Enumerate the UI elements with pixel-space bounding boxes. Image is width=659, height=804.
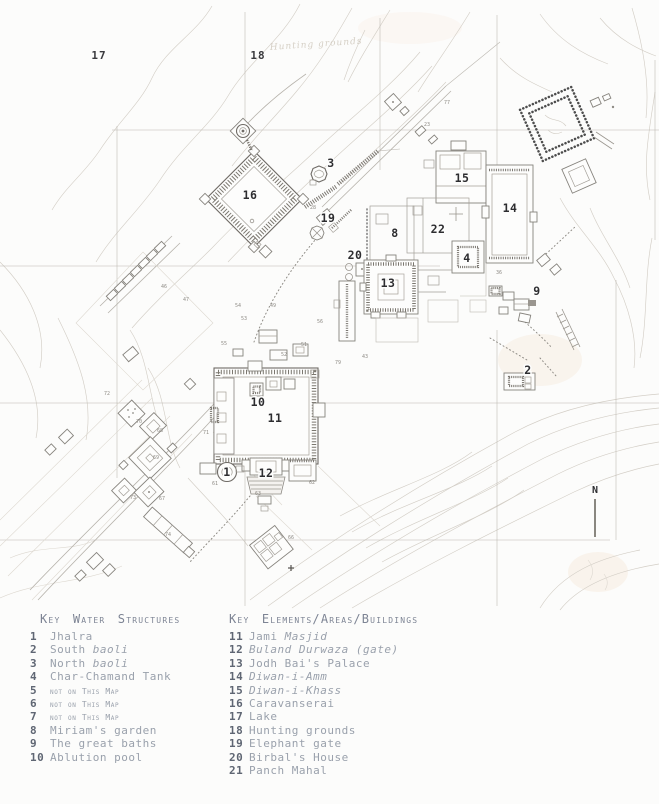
map-label-28: 28 xyxy=(310,205,316,211)
map-label-74: 74 xyxy=(165,532,171,538)
legend-item-number: 14 xyxy=(229,670,249,683)
map-label-55: 55 xyxy=(221,341,227,347)
map-label-12: 12 xyxy=(259,466,274,480)
handwritten-note: Hunting grounds xyxy=(269,37,363,54)
legend-item-12: 12Buland Durwaza (gate) xyxy=(229,643,418,656)
tomb-plan xyxy=(266,377,295,390)
map-label-49: 49 xyxy=(270,303,276,309)
legend-item-text: not on This Map xyxy=(50,684,119,697)
legend-item-text: Lake xyxy=(249,710,278,723)
legend-item-text: Diwan-i-Khass xyxy=(249,684,342,697)
map-label-9: 9 xyxy=(533,284,540,298)
legend-item-6: 6not on This Map xyxy=(30,697,180,710)
map-label-8: 8 xyxy=(391,226,398,240)
legend-item-15: 15Diwan-i-Khass xyxy=(229,684,418,697)
legend-item-number: 6 xyxy=(30,697,50,710)
legend-item-text: Buland Durwaza (gate) xyxy=(249,643,399,656)
map-label-66: 66 xyxy=(288,535,294,541)
map-label-10: 10 xyxy=(251,395,266,409)
legend-water-title: Key Water Structures xyxy=(40,612,180,630)
legend-item-number: 17 xyxy=(229,710,249,723)
legend-item-3: 3North baoli xyxy=(30,657,180,670)
map-label-72: 72 xyxy=(104,391,110,397)
legend-item-text: Caravanserai xyxy=(249,697,334,710)
legend-item-number: 10 xyxy=(30,751,50,764)
tower-plan xyxy=(230,118,255,151)
legend-item-text: Char-Chamand Tank xyxy=(50,670,171,683)
legend-item-text: North baoli xyxy=(50,657,128,670)
legend-item-8: 8Miriam's garden xyxy=(30,724,180,737)
legend-item-number: 16 xyxy=(229,697,249,710)
legend-water-items: 1Jhalra2South baoli3North baoli4Char-Cha… xyxy=(30,630,180,764)
great-baths-plan xyxy=(489,253,561,323)
map-label-3: 3 xyxy=(327,156,334,170)
legend-item-text: Miriam's garden xyxy=(50,724,157,737)
legend-item-14: 14Diwan-i-Amm xyxy=(229,670,418,683)
legend-item-number: 8 xyxy=(30,724,50,737)
map-label-46: 46 xyxy=(161,284,167,290)
map-label-71: 71 xyxy=(203,430,209,436)
legend-item-text: South baoli xyxy=(50,643,128,656)
legend-item-16: 16Caravanserai xyxy=(229,697,418,710)
legend-item-number: 2 xyxy=(30,643,50,656)
legend-item-number: 1 xyxy=(30,630,50,643)
legend-item-number: 21 xyxy=(229,764,249,777)
map-label-2: 2 xyxy=(524,363,531,377)
legend-item-text: Jami Masjid xyxy=(249,630,327,643)
legend-item-18: 18Hunting grounds xyxy=(229,724,418,737)
legend-item-text: not on This Map xyxy=(50,710,119,723)
map-label-62: 62 xyxy=(309,480,315,486)
map-label-43: 43 xyxy=(362,354,368,360)
elephant-gate-plan xyxy=(305,149,400,240)
lodge-plan xyxy=(562,94,614,194)
legend-item-17: 17Lake xyxy=(229,710,418,723)
map-label-18: 18 xyxy=(250,49,265,62)
legend-item-2: 2South baoli xyxy=(30,643,180,656)
legend-item-text: Jodh Bai's Palace xyxy=(249,657,370,670)
legend-item-21: 21Panch Mahal xyxy=(229,764,418,777)
legend-item-11: 11Jami Masjid xyxy=(229,630,418,643)
legend-item-text: The great baths xyxy=(50,737,157,750)
prayer-hall xyxy=(211,378,234,454)
site-plan-map: Hunting grounds N 1718163191514228204131… xyxy=(0,0,659,612)
legend-elements-buildings: Key Elements/Areas/Buildings 11Jami Masj… xyxy=(229,612,418,777)
map-label-69: 69 xyxy=(153,455,159,461)
survey-grid xyxy=(0,12,659,606)
map-label-54: 54 xyxy=(235,303,241,309)
jhalra-plan xyxy=(218,463,245,482)
legend-item-text: not on This Map xyxy=(50,697,119,710)
map-label-15: 15 xyxy=(455,171,470,185)
map-label-1: 1 xyxy=(223,465,230,479)
legend-item-number: 12 xyxy=(229,643,249,656)
map-label-22: 22 xyxy=(431,222,446,236)
map-label-16: 16 xyxy=(243,188,258,202)
site-plan-page: Hunting grounds N 1718163191514228204131… xyxy=(0,0,659,804)
map-label-63: 63 xyxy=(255,491,261,497)
map-label-77: 77 xyxy=(444,100,450,106)
legend-item-10: 10Ablution pool xyxy=(30,751,180,764)
map-label-61: 61 xyxy=(212,481,218,487)
map-label-79: 79 xyxy=(335,360,341,366)
legend-item-number: 9 xyxy=(30,737,50,750)
map-label-20: 20 xyxy=(348,248,363,262)
map-label-47: 47 xyxy=(183,297,189,303)
north-label: N xyxy=(592,485,598,496)
map-label-52: 52 xyxy=(281,352,287,358)
southwest-cluster xyxy=(45,378,196,581)
legend-item-number: 5 xyxy=(30,684,50,697)
roads-and-paths xyxy=(0,42,576,600)
legend-item-4: 4Char-Chamand Tank xyxy=(30,670,180,683)
north-gate xyxy=(248,361,262,371)
map-label-17: 17 xyxy=(91,49,106,62)
legend-item-20: 20Birbal's House xyxy=(229,751,418,764)
map-label-13: 13 xyxy=(381,276,396,290)
legend-item-number: 18 xyxy=(229,724,249,737)
legend-item-number: 4 xyxy=(30,670,50,683)
legend-elements-title: Key Elements/Areas/Buildings xyxy=(229,612,418,630)
legend-item-text: Jhalra xyxy=(50,630,93,643)
map-key: Key Water Structures 1Jhalra2South baoli… xyxy=(0,612,659,802)
map-label-23: 23 xyxy=(424,122,430,128)
legend-item-text: Elephant gate xyxy=(249,737,342,750)
legend-item-1: 1Jhalra xyxy=(30,630,180,643)
map-label-4: 4 xyxy=(463,251,470,265)
legend-item-text: Diwan-i-Amm xyxy=(249,670,327,683)
map-label-11: 11 xyxy=(268,411,283,425)
legend-item-number: 15 xyxy=(229,684,249,697)
jami-masjid-plan xyxy=(200,361,325,511)
map-label-19: 19 xyxy=(321,211,336,225)
legend-item-13: 13Jodh Bai's Palace xyxy=(229,657,418,670)
legend-item-number: 11 xyxy=(229,630,249,643)
legend-item-number: 19 xyxy=(229,737,249,750)
map-label-51: 51 xyxy=(301,342,307,348)
causeway-blocks xyxy=(106,241,165,300)
legend-item-9: 9The great baths xyxy=(30,737,180,750)
roadside-structures xyxy=(385,94,438,145)
legend-item-text: Ablution pool xyxy=(50,751,143,764)
map-label-70: 70 xyxy=(136,419,142,425)
west-range-block xyxy=(334,281,355,341)
legend-item-number: 20 xyxy=(229,751,249,764)
contour-lines xyxy=(0,4,659,610)
map-label-73: 73 xyxy=(130,495,136,501)
legend-item-number: 3 xyxy=(30,657,50,670)
map-label-68: 68 xyxy=(157,428,163,434)
map-label-36: 36 xyxy=(496,270,502,276)
legend-item-7: 7not on This Map xyxy=(30,710,180,723)
legend-elements-items: 11Jami Masjid12Buland Durwaza (gate)13Jo… xyxy=(229,630,418,777)
map-label-56: 56 xyxy=(317,319,323,325)
legend-item-text: Panch Mahal xyxy=(249,764,327,777)
legend-item-text: Birbal's House xyxy=(249,751,349,764)
legend-water-structures: Key Water Structures 1Jhalra2South baoli… xyxy=(30,612,180,764)
map-label-14: 14 xyxy=(503,201,518,215)
legend-item-number: 13 xyxy=(229,657,249,670)
map-label-53: 53 xyxy=(241,316,247,322)
legend-item-number: 7 xyxy=(30,710,50,723)
legend-item-19: 19Elephant gate xyxy=(229,737,418,750)
southeast-cluster xyxy=(250,526,294,571)
map-label-67: 67 xyxy=(159,496,165,502)
hunting-enclosure-plan xyxy=(520,87,594,161)
east-gate xyxy=(313,403,325,417)
southeast-building xyxy=(289,460,316,481)
legend-item-5: 5not on This Map xyxy=(30,684,180,697)
legend-item-text: Hunting grounds xyxy=(249,724,356,737)
north-baoli-plan xyxy=(310,166,327,185)
